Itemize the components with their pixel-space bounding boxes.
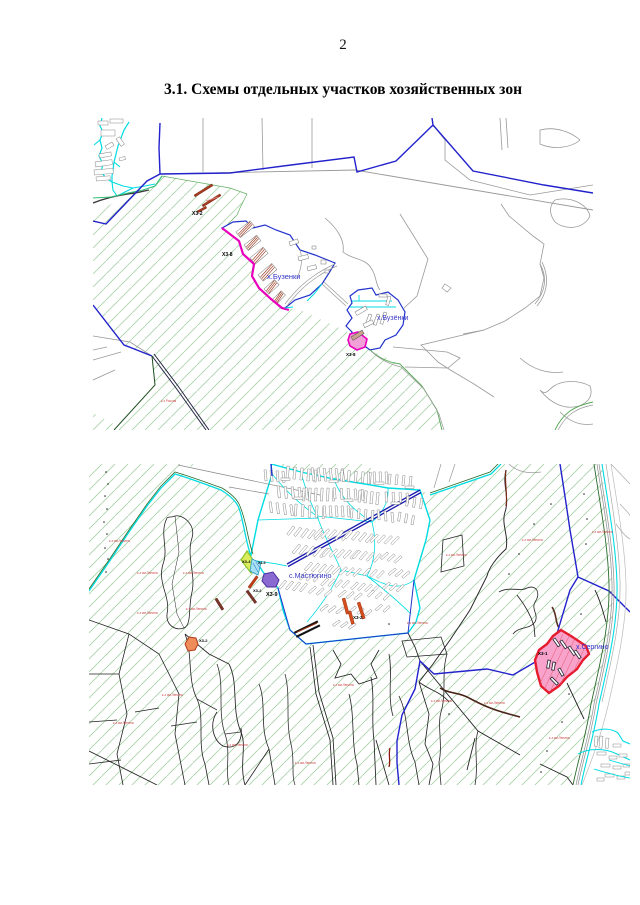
svg-text:к-з им.Ленина: к-з им.Ленина — [186, 607, 207, 611]
svg-text:х.Бузенки: х.Бузенки — [267, 272, 300, 281]
svg-text:к-з им.Ленина: к-з им.Ленина — [109, 539, 130, 543]
svg-text:к-з им.Ленина: к-з им.Ленина — [183, 571, 204, 575]
svg-text:к-з им.Ленина: к-з им.Ленина — [162, 693, 183, 697]
svg-text:к-з им.Ленина: к-з им.Ленина — [407, 621, 428, 625]
svg-text:к-з им.Ленина: к-з им.Ленина — [295, 761, 316, 765]
svg-text:Х3-8: Х3-8 — [346, 352, 356, 357]
svg-text:Х3-9: Х3-9 — [266, 592, 278, 598]
svg-text:Х3-4: Х3-4 — [242, 559, 251, 564]
svg-text:х.Бузёнки: х.Бузёнки — [377, 315, 408, 322]
svg-text:Х3-2: Х3-2 — [199, 638, 208, 643]
svg-text:к-з им.Ленина: к-з им.Ленина — [137, 611, 158, 615]
svg-text:к-з им.Ленина: к-з им.Ленина — [113, 721, 134, 725]
svg-text:к-з им.Ленина: к-з им.Ленина — [431, 699, 452, 703]
svg-text:Х3-5: Х3-5 — [258, 561, 265, 565]
svg-text:к-з Россия: к-з Россия — [161, 399, 177, 403]
svg-text:Х3-1: Х3-1 — [538, 651, 548, 656]
svg-text:к-з им.Ленина: к-з им.Ленина — [592, 530, 613, 534]
svg-text:к-з им.Ленина: к-з им.Ленина — [484, 701, 505, 705]
svg-text:Х3-8: Х3-8 — [222, 252, 233, 258]
svg-text:к-з им.Ленина: к-з им.Ленина — [522, 538, 543, 542]
svg-text:к-з им.Ленина: к-з им.Ленина — [446, 553, 467, 557]
svg-text:Х3-2: Х3-2 — [253, 588, 262, 593]
svg-text:Х3-2: Х3-2 — [192, 211, 203, 217]
svg-text:х.Сергино: х.Сергино — [576, 644, 609, 651]
svg-text:к-з им.Ленина: к-з им.Ленина — [333, 683, 354, 687]
svg-text:к-з им.Ленина: к-з им.Ленина — [549, 736, 570, 740]
svg-text:Х3-2: Х3-2 — [353, 615, 363, 620]
svg-text:к-з им.Ленина: к-з им.Ленина — [227, 743, 248, 747]
svg-text:к-з им.Ленина: к-з им.Ленина — [137, 571, 158, 575]
svg-text:с.Мастюгино: с.Мастюгино — [289, 571, 332, 580]
